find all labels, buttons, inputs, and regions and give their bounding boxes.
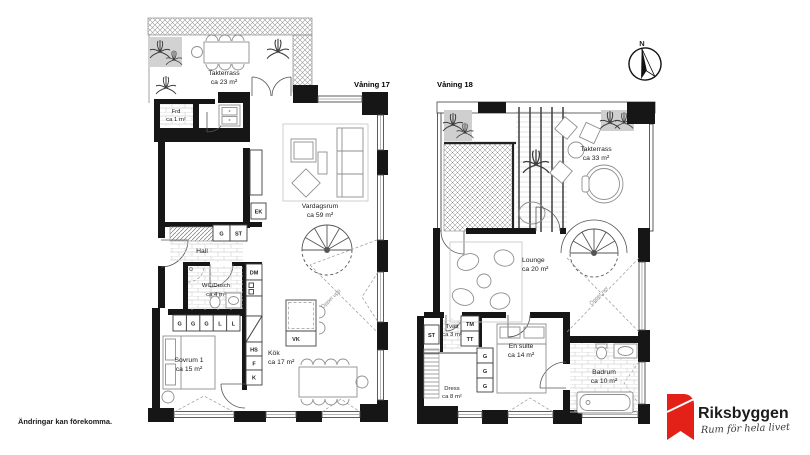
counter-17 bbox=[219, 105, 240, 126]
room-area-tvatt: ca 3 m² bbox=[442, 332, 462, 338]
room-area-lounge: ca 20 m² bbox=[522, 266, 549, 273]
terrace-table bbox=[204, 42, 249, 63]
shelf-hatch bbox=[424, 349, 439, 398]
disclaimer-text: Ändringar kan förekomma. bbox=[18, 417, 112, 426]
doors-18 bbox=[441, 207, 566, 388]
room-label-takterrass18: Takterrass bbox=[580, 146, 612, 153]
spiral-stair-18 bbox=[570, 229, 618, 277]
room-label-vardagsrum: Vardagsrum bbox=[302, 203, 339, 210]
floorplan-page: Våning 17 Takterrass ca 23 m² Frd ca 1 m… bbox=[0, 0, 810, 455]
room-label-hall: Hall bbox=[196, 248, 208, 255]
room-label-wcdusch: WC/Dusch bbox=[202, 283, 230, 289]
room-label-sovrum1: Sovrum 1 bbox=[174, 357, 203, 364]
room-label-lounge: Lounge bbox=[522, 257, 545, 264]
room-label-ensuite: En suite bbox=[509, 343, 534, 350]
open-note-17: Öppet upp bbox=[320, 288, 343, 311]
closet-cell-label: G bbox=[204, 322, 208, 328]
plant-icon bbox=[523, 149, 549, 172]
room-label-dress: Dress bbox=[444, 386, 459, 392]
floor17-label: Våning 17 bbox=[354, 80, 390, 89]
closet-cell-label: G bbox=[178, 322, 182, 328]
compass-icon: N bbox=[626, 39, 664, 83]
floor18-label: Våning 18 bbox=[437, 80, 473, 89]
open-note-18: Öppet ner bbox=[588, 285, 610, 307]
vk-label: VK bbox=[292, 337, 300, 343]
room-area-wcdusch: ca 4 m² bbox=[206, 292, 226, 298]
plant-icon bbox=[267, 39, 289, 59]
wardrobe-cell-label: G bbox=[483, 384, 487, 390]
livingroom-furniture bbox=[283, 124, 368, 201]
room-label-frd: Frd bbox=[172, 109, 181, 115]
room-area-frd: ca 1 m² bbox=[166, 117, 186, 123]
spiral-stair-17 bbox=[302, 225, 352, 275]
wardrobe-cell-label: G bbox=[483, 369, 487, 375]
st18-label: ST bbox=[428, 333, 436, 339]
room-area-badrum: ca 10 m² bbox=[591, 378, 618, 385]
room-area-takterrass17: ca 23 m² bbox=[211, 79, 238, 86]
room-area-ensuite: ca 14 m² bbox=[508, 352, 535, 359]
terrace-round-table bbox=[585, 165, 623, 203]
room-label-badrum: Badrum bbox=[592, 369, 616, 376]
coat-rack bbox=[170, 227, 213, 241]
terrace-18 bbox=[437, 102, 655, 232]
st-label: ST bbox=[235, 232, 243, 238]
floor-plan-18: Våning 18 Takterrass ca 33 m² Lounge ca … bbox=[417, 80, 655, 424]
g-label: G bbox=[219, 232, 223, 238]
k-label: K bbox=[252, 376, 256, 382]
brand-name: Riksbyggen bbox=[698, 405, 789, 422]
hs-label: HS bbox=[250, 348, 258, 354]
wardrobe-cell-label: G bbox=[483, 354, 487, 360]
riksbyggen-logo: Riksbyggen Rum för hela livet bbox=[667, 394, 790, 440]
compass-north-label: N bbox=[639, 39, 644, 48]
dining-table-17 bbox=[299, 359, 368, 405]
tt-label: TT bbox=[467, 337, 474, 343]
room-area-takterrass18: ca 33 m² bbox=[583, 155, 610, 162]
ek-label: EK bbox=[255, 210, 263, 216]
planter bbox=[149, 37, 182, 67]
room-label-kok: Kök bbox=[268, 350, 280, 357]
floor-plan-17: Våning 17 Takterrass ca 23 m² Frd ca 1 m… bbox=[148, 18, 390, 422]
brand-tagline: Rum för hela livet bbox=[700, 422, 791, 436]
room-area-sovrum1: ca 15 m² bbox=[176, 366, 203, 373]
room-area-dress: ca 8 m² bbox=[442, 394, 462, 400]
floorplan-canvas: Våning 17 Takterrass ca 23 m² Frd ca 1 m… bbox=[0, 0, 810, 455]
tm-label: TM bbox=[466, 322, 474, 328]
room-area-kok: ca 17 m² bbox=[268, 359, 295, 366]
room-label-tvatt: Tvätt bbox=[445, 324, 458, 330]
closet-cell-label: G bbox=[191, 322, 195, 328]
bathtub bbox=[577, 392, 633, 413]
terrace-17 bbox=[148, 18, 312, 103]
room-area-vardagsrum: ca 59 m² bbox=[307, 212, 334, 219]
room-label-takterrass17: Takterrass bbox=[208, 70, 240, 77]
dm-label: DM bbox=[250, 271, 259, 277]
